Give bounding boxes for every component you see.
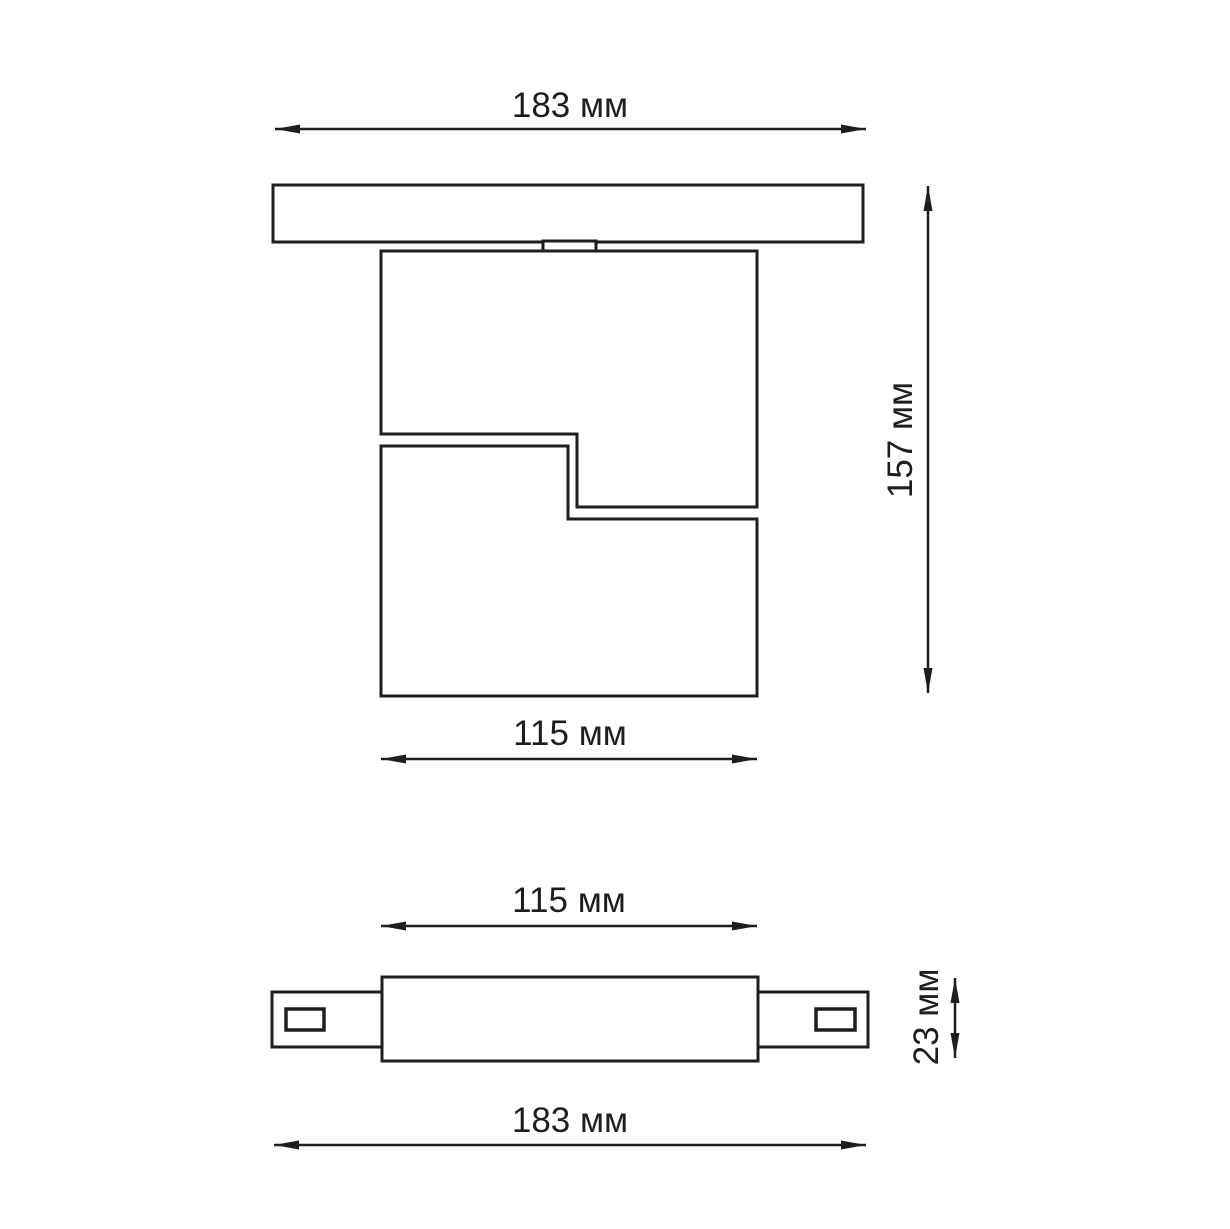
top-track-width-dimension-label: 183 мм bbox=[512, 86, 628, 125]
top-view: 183 мм 157 мм 115 мм bbox=[273, 86, 928, 759]
right-connector-slot bbox=[816, 1009, 855, 1030]
body-width-dimension-label: 115 мм bbox=[513, 714, 627, 753]
drawing-page: 183 мм 157 мм 115 мм 115 мм bbox=[0, 0, 1230, 1229]
left-connector-slot bbox=[286, 1009, 324, 1030]
track-bar bbox=[273, 185, 863, 242]
overall-height-dimension-label: 157 мм bbox=[881, 382, 920, 498]
side-body bbox=[382, 977, 758, 1061]
side-height-dimension-label: 23 мм bbox=[907, 969, 946, 1066]
side-body-width-dimension-label: 115 мм bbox=[512, 881, 626, 920]
technical-drawing: 183 мм 157 мм 115 мм 115 мм bbox=[0, 0, 1230, 1229]
side-view: 115 мм 23 мм 183 мм bbox=[272, 881, 955, 1145]
side-track-length-dimension-label: 183 мм bbox=[512, 1101, 628, 1140]
